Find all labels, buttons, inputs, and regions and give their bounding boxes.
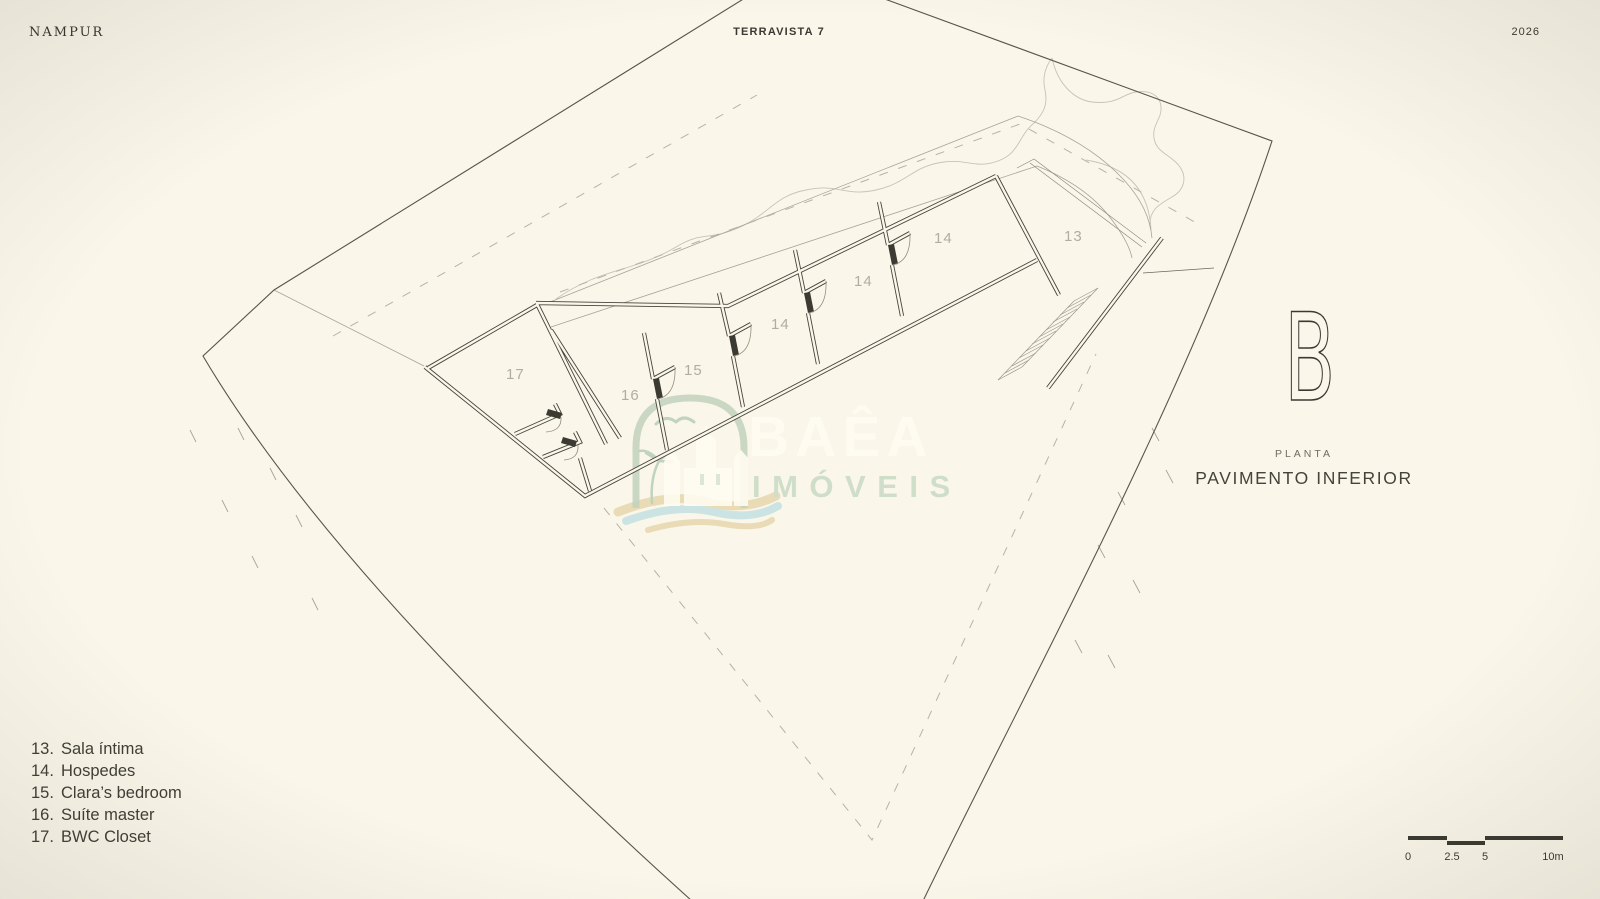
room-label-14b: 14 xyxy=(854,273,873,290)
legend-number: 17. xyxy=(31,826,61,848)
plan-kicker: PLANTA xyxy=(1154,448,1454,460)
room-label-14a: 14 xyxy=(771,316,790,333)
legend-label: BWC Closet xyxy=(61,826,151,848)
sheet-letter: B xyxy=(1284,288,1335,429)
wave-blue-icon xyxy=(626,506,778,521)
scale-bar-segment xyxy=(1408,836,1447,840)
staircase xyxy=(998,288,1098,380)
contour-line xyxy=(556,58,1052,299)
room-label-16: 16 xyxy=(621,387,640,404)
room-label-17: 17 xyxy=(506,366,525,383)
legend-item: 14. Hospedes xyxy=(31,760,182,782)
corner-link-line xyxy=(274,290,424,366)
legend-number: 13. xyxy=(31,738,61,760)
legend-item: 15. Clara’s bedroom xyxy=(31,782,182,804)
legend-item: 13. Sala íntima xyxy=(31,738,182,760)
room-label-13: 13 xyxy=(1064,228,1083,245)
legend-item: 16. Suíte master xyxy=(31,804,182,826)
legend-label: Clara’s bedroom xyxy=(61,782,182,804)
site-boundary xyxy=(203,0,1272,899)
legend-number: 16. xyxy=(31,804,61,826)
site-boundary-left xyxy=(203,0,745,899)
fort-window-icon xyxy=(700,474,704,485)
watermark-subtitle: IMÓVEIS xyxy=(752,468,962,504)
scale-tick-label: 5 xyxy=(1475,851,1495,863)
project-title: TERRAVISTA 7 xyxy=(679,26,879,38)
watermark-logo: BAÊA IMÓVEIS xyxy=(618,398,962,530)
scale-bar-segment xyxy=(1447,841,1485,845)
legend-label: Sala íntima xyxy=(61,738,144,760)
legend-number: 15. xyxy=(31,782,61,804)
plan-title: PAVIMENTO INFERIOR xyxy=(1104,468,1504,489)
scale-tick-label: 0 xyxy=(1398,851,1418,863)
boundary-connector-line xyxy=(1143,268,1214,273)
year-label: 2026 xyxy=(1476,26,1540,38)
stair-treads xyxy=(998,288,1098,380)
legend-item: 17. BWC Closet xyxy=(31,826,182,848)
brand-logo: NAMPUR xyxy=(29,25,104,40)
slope-hatch-ticks xyxy=(190,428,1173,668)
scale-bar-segment xyxy=(1485,836,1563,840)
contour-line xyxy=(1052,58,1184,224)
deck-edge-line xyxy=(545,116,1152,304)
drawing-sheet: BAÊA IMÓVEIS xyxy=(0,0,1600,899)
wave-sand2-icon xyxy=(648,520,772,530)
sheet-letter-group: B xyxy=(1284,288,1335,429)
stair-rails xyxy=(998,288,1098,380)
terrain-contours xyxy=(556,58,1184,299)
garden-arc xyxy=(1086,160,1151,230)
scale-tick-label: 2.5 xyxy=(1437,851,1467,863)
watermark-wordmark: BAÊA xyxy=(748,404,934,469)
fort-window-icon xyxy=(716,474,720,485)
setback-line xyxy=(333,95,757,336)
room-label-14c: 14 xyxy=(934,230,953,247)
legend-number: 14. xyxy=(31,760,61,782)
room-legend: 13. Sala íntima 14. Hospedes 15. Clara’s… xyxy=(31,738,182,848)
legend-label: Hospedes xyxy=(61,760,135,782)
room-label-15: 15 xyxy=(684,362,703,379)
legend-label: Suíte master xyxy=(61,804,155,826)
fort-icon xyxy=(664,435,748,507)
scale-tick-label: 10m xyxy=(1533,851,1573,863)
